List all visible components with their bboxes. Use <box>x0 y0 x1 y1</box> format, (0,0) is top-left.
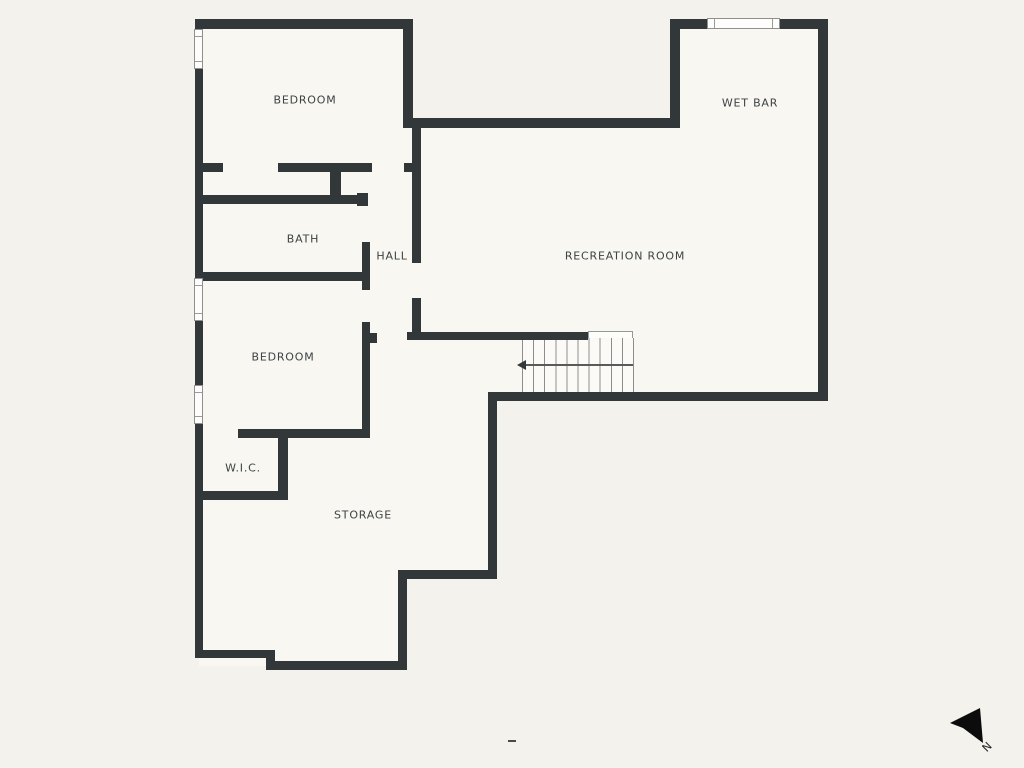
floor-plan: BEDROOM WET BAR BATH HALL RECREATION ROO… <box>0 0 1024 768</box>
wall-recreation-bottom <box>488 392 828 401</box>
wall-bottom-left <box>195 650 275 658</box>
wall-bedroom-top <box>195 19 413 29</box>
wall-bedroom-left-bottom <box>238 429 370 438</box>
room-label-bedroom-left: BEDROOM <box>251 351 314 364</box>
floor-area-bath <box>199 168 375 288</box>
wall-left-upper <box>195 68 203 279</box>
wall-right <box>818 19 828 401</box>
room-label-wic: W.I.C. <box>225 462 261 475</box>
wall-bedroom-bottom-seg2 <box>278 163 372 172</box>
room-label-recreation: RECREATION ROOM <box>565 250 685 263</box>
wall-storage-step-h <box>398 570 497 579</box>
stair-direction-line <box>524 364 633 366</box>
wall-bottom-lower <box>266 661 407 670</box>
wall-hall-right-upper <box>412 128 421 263</box>
wall-bedroom-rec-divider <box>403 118 680 128</box>
wall-storage-east-v <box>398 570 407 670</box>
window-bedroom-left-1 <box>194 278 203 321</box>
north-arrow-shape <box>950 708 983 743</box>
wall-left-mid <box>195 320 203 386</box>
wall-storage-right-v <box>488 392 497 579</box>
wall-wetbar-left <box>670 19 680 128</box>
wall-left-lower <box>195 423 203 651</box>
room-label-bedroom-top: BEDROOM <box>273 94 336 107</box>
room-label-bath: BATH <box>287 233 319 246</box>
wall-wic-bottom <box>195 491 288 500</box>
wall-hall-bottom-stub <box>362 333 377 343</box>
wall-bath-top <box>195 195 368 204</box>
stair-direction-arrow-icon <box>517 360 526 370</box>
north-arrow-icon: N <box>925 688 1005 768</box>
room-label-wet-bar: WET BAR <box>722 97 778 110</box>
small-dash-mark <box>508 740 516 742</box>
wall-bath-right <box>362 242 370 290</box>
wall-stair-top <box>407 332 588 340</box>
room-label-storage: STORAGE <box>334 509 392 522</box>
wall-wic-right <box>278 433 288 500</box>
floor-area-storage-east <box>366 340 493 440</box>
wall-wetbar-top-right <box>779 19 828 29</box>
window-bedroom-left-2 <box>194 385 203 424</box>
floor-area-wet-bar <box>675 24 823 132</box>
window-bedroom-top <box>194 29 203 69</box>
wall-bath-bottom <box>195 272 370 281</box>
wall-bedroom-bottom-seg1 <box>203 163 223 172</box>
north-label: N <box>980 740 995 755</box>
window-wet-bar <box>707 18 780 29</box>
wall-bedroom-top-right-v <box>403 19 413 128</box>
floor-area-storage-upper <box>199 434 493 576</box>
wall-bath-top-cap <box>357 193 368 206</box>
room-label-hall: HALL <box>376 250 407 263</box>
